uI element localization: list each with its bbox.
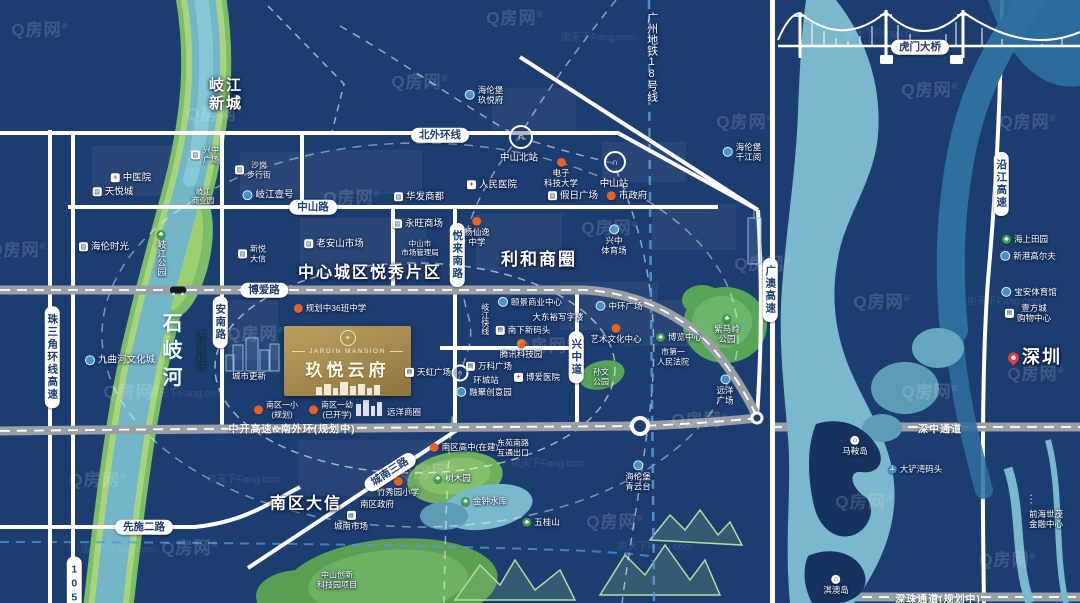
- road-name-pill: 沿江高速: [994, 152, 1009, 216]
- poi-label: 海伦堡青云台: [625, 460, 651, 491]
- poi-label: 海伦堡玖悦府: [465, 85, 504, 105]
- poi-label: 新港高尔夫: [1000, 251, 1056, 261]
- riverside-belt-label: 滨江景观带: [196, 330, 206, 370]
- road-name-pill: 北外环线: [411, 128, 469, 143]
- mall-icon: ▤: [191, 151, 200, 160]
- poi-label: 腾讯科技园: [500, 339, 543, 359]
- school-icon: [393, 477, 402, 486]
- poi-label: ▤新悦大信: [238, 244, 266, 263]
- poi-label: ▤永旺商场: [393, 218, 443, 229]
- school-icon: [430, 443, 439, 452]
- blue-icon: [723, 147, 733, 157]
- dashed-dots: ⋮: [1026, 493, 1037, 506]
- road-name-pill: 兴中道: [569, 331, 584, 383]
- road-name-label: 中开高速&南外环(规划中): [229, 421, 356, 436]
- poi-label: ♣金钟水库: [461, 496, 507, 506]
- brand-emblem-icon: ✦: [340, 330, 356, 346]
- blue-icon: [242, 190, 252, 200]
- blue-icon: [1000, 251, 1010, 261]
- school-icon: [294, 304, 303, 313]
- brand-name-en-row: JARDIN MANSION: [292, 348, 403, 355]
- blue-icon: [85, 355, 95, 365]
- poi-label: 中山创新科技园项目: [317, 570, 357, 589]
- poi-label: +人民医院: [467, 179, 517, 190]
- poi-label: ♣博览中心: [656, 332, 702, 342]
- poi-label: 远洋广场: [716, 374, 733, 405]
- road-name-pill: 中山路: [289, 200, 337, 215]
- nanqu-daxin-label: 南区大信: [270, 494, 342, 513]
- poi-label: +中医院: [111, 172, 152, 183]
- poi-label: 中山站: [600, 178, 629, 189]
- road-name-pill: 安南路: [213, 296, 228, 348]
- mall-icon: ▤: [548, 191, 557, 200]
- school-icon: [472, 217, 481, 226]
- road-name-pill: 博爱路: [240, 283, 288, 298]
- poi-label: 南区一幼(已开学): [309, 400, 353, 419]
- poi-label: ▤华发商都: [394, 191, 444, 202]
- road-name-pill: 悦来南路: [450, 223, 465, 287]
- poi-label: 海伦堡千江阅: [723, 142, 762, 162]
- road-name-label: 深中通道: [918, 421, 962, 436]
- blue-icon: [633, 460, 643, 470]
- blue-icon: [595, 301, 605, 311]
- home-icon: ⌂: [831, 575, 840, 584]
- g105-label: 105国道: [67, 557, 82, 603]
- property-location-map: ✦ JARDIN MANSION 玖悦云府 岐江新城中心城区悦秀片区利和商圈南区…: [0, 0, 1080, 603]
- qijiang-park-label: ♣岐江公园: [156, 230, 167, 276]
- park-icon: ♣: [461, 497, 470, 506]
- road-name-pill: 珠三角环线高速: [45, 306, 60, 408]
- road-name-pill: 广澳高速: [763, 258, 778, 322]
- poi-label: ⊥大铲湾码头: [888, 464, 943, 474]
- park-icon: ♣: [522, 518, 531, 527]
- school-icon: [254, 406, 263, 415]
- junction-ring-icon: [752, 413, 762, 423]
- poi-label: 南区高中(在建): [430, 442, 499, 452]
- poi-label: 艺术文化中心: [590, 324, 641, 344]
- logo-building-silhouette-icon: [316, 382, 380, 395]
- central-district-label: 中心城区悦秀片区: [298, 263, 442, 282]
- poi-label: 南区政府: [360, 499, 394, 509]
- poi-label: 九曲河文化城: [85, 354, 155, 365]
- poi-label: 中环广场: [595, 301, 642, 311]
- poi-label: 融聚创意园: [456, 387, 512, 397]
- hosp-icon: +: [514, 373, 523, 382]
- park-icon: ♣: [722, 314, 731, 323]
- poi-label: ▤天悦城: [93, 186, 134, 197]
- mall-icon: ▤: [304, 239, 313, 248]
- qijiang-express-label: 岐江快线: [480, 303, 490, 335]
- interchange-ring-icon: [632, 418, 648, 434]
- poi-label: ♣树木园: [433, 473, 471, 483]
- road-name-pill: 先施二路: [115, 520, 173, 535]
- property-logo-card: ✦ JARDIN MANSION 玖悦云府: [284, 326, 411, 396]
- poi-label: ▤假日广场: [548, 190, 598, 201]
- poi-label: 城市更新: [232, 371, 266, 381]
- blue-icon: [456, 387, 466, 397]
- mall-icon: ▤: [405, 368, 414, 377]
- qijiang-new-town-label: 岐江新城: [209, 77, 243, 113]
- brand-name-en: JARDIN MANSION: [309, 348, 386, 355]
- humen-bridge-label: 虎门大桥: [891, 40, 949, 55]
- poi-label: 大东裕写字楼: [532, 312, 583, 322]
- poi-label: 市第一人民法院: [657, 347, 689, 366]
- school-icon: [516, 339, 525, 348]
- road-name-label: 深珠通道(规划中): [895, 591, 981, 603]
- poi-label: 颐景商业中心: [498, 297, 562, 307]
- mall-icon: ▤: [393, 219, 402, 228]
- shiqi-river-label: 石岐河: [158, 313, 182, 394]
- mall-icon: ▤: [93, 187, 102, 196]
- park-icon: ♣: [1002, 235, 1011, 244]
- park-icon: ♣: [156, 230, 165, 239]
- blue-icon: [465, 90, 475, 100]
- poi-label: ▤天虹广场: [405, 367, 451, 377]
- poi-label: 杨仙逸中学: [464, 217, 490, 247]
- mall-icon: ▤: [466, 362, 475, 371]
- poi-label: 岐江商业园: [192, 187, 215, 205]
- poi-label: 电子科技大学: [544, 158, 578, 188]
- poi-label: 中山市市场管理局: [401, 239, 439, 257]
- zhongshan-station-icon: ∩: [604, 151, 626, 173]
- mall-icon: ▤: [1005, 309, 1014, 318]
- brand-name-cn: 玖悦云府: [306, 356, 390, 381]
- mall-icon: ▤: [496, 326, 505, 335]
- poi-label: 远洋商圈: [387, 407, 421, 417]
- poi-label: 岐江壹号: [242, 189, 293, 200]
- anchor-icon: ⊥: [888, 465, 897, 474]
- poi-label: ♣紫马岭公园: [714, 314, 740, 344]
- zhongshan-north-station-icon: ∩: [509, 125, 533, 149]
- car-icon: [170, 287, 186, 294]
- shenzhen-label: 深圳: [1008, 347, 1062, 369]
- poi-label: 前海世茂金融中心: [1029, 509, 1063, 529]
- blue-icon: [498, 297, 508, 307]
- blue-icon: [609, 224, 619, 234]
- school-icon: [607, 191, 616, 200]
- poi-label: 中山北站: [500, 152, 538, 163]
- mall-icon: ▤: [394, 192, 403, 201]
- hosp-icon: +: [467, 180, 476, 189]
- poi-label: 南区一小(规划): [254, 400, 298, 419]
- poi-label: ⌂淇澳岛: [823, 575, 849, 595]
- mall-icon: ▤: [346, 511, 355, 520]
- poi-label: 规划中36班中学: [294, 303, 366, 313]
- poi-label: ▤万科广场: [466, 361, 512, 371]
- blue-icon: [1001, 287, 1011, 297]
- poi-label: ▤南下新码头: [496, 325, 551, 335]
- poi-label: ▤沙岗步行街: [235, 160, 271, 179]
- school-icon: [556, 158, 565, 167]
- poi-label: 兴中体育场: [601, 224, 627, 255]
- poi-label: 环城站: [473, 375, 499, 385]
- mall-icon: ▤: [235, 166, 244, 175]
- blue-icon: [720, 374, 730, 384]
- school-icon: [611, 324, 620, 333]
- poi-label: ▤老安山市场: [304, 238, 364, 249]
- poi-label: 宝安体育馆: [1001, 287, 1057, 297]
- mall-icon: ▤: [79, 242, 88, 251]
- poi-label: ▤海伦时光: [79, 241, 129, 252]
- poi-label: +博爱医院: [514, 372, 560, 382]
- poi-label: 市政府: [607, 190, 648, 201]
- poi-label: 东苑南路互通出口: [497, 438, 529, 457]
- poi-label: ♣五桂山: [522, 517, 560, 527]
- metro-line18-label: 广州地铁18号线: [644, 12, 657, 102]
- park-icon: ♣: [656, 333, 665, 342]
- hosp-icon: +: [111, 173, 120, 182]
- park-icon: ♣: [433, 474, 442, 483]
- poi-label: ▤城南市场: [334, 511, 368, 531]
- lihe-cbd-label: 利和商圈: [501, 250, 577, 270]
- school-icon: [309, 406, 318, 415]
- poi-label: ▤兴中广场: [191, 145, 219, 164]
- pin-icon: [1006, 350, 1022, 366]
- home-icon: ⌂: [850, 436, 859, 445]
- mall-icon: ▤: [238, 250, 247, 259]
- poi-label: 孙文公园: [593, 367, 609, 386]
- poi-label: ⌂马鞍岛: [842, 436, 868, 456]
- poi-label: ♣海上田园: [1002, 234, 1048, 244]
- poi-label: ▤壹方城购物中心: [1005, 303, 1051, 323]
